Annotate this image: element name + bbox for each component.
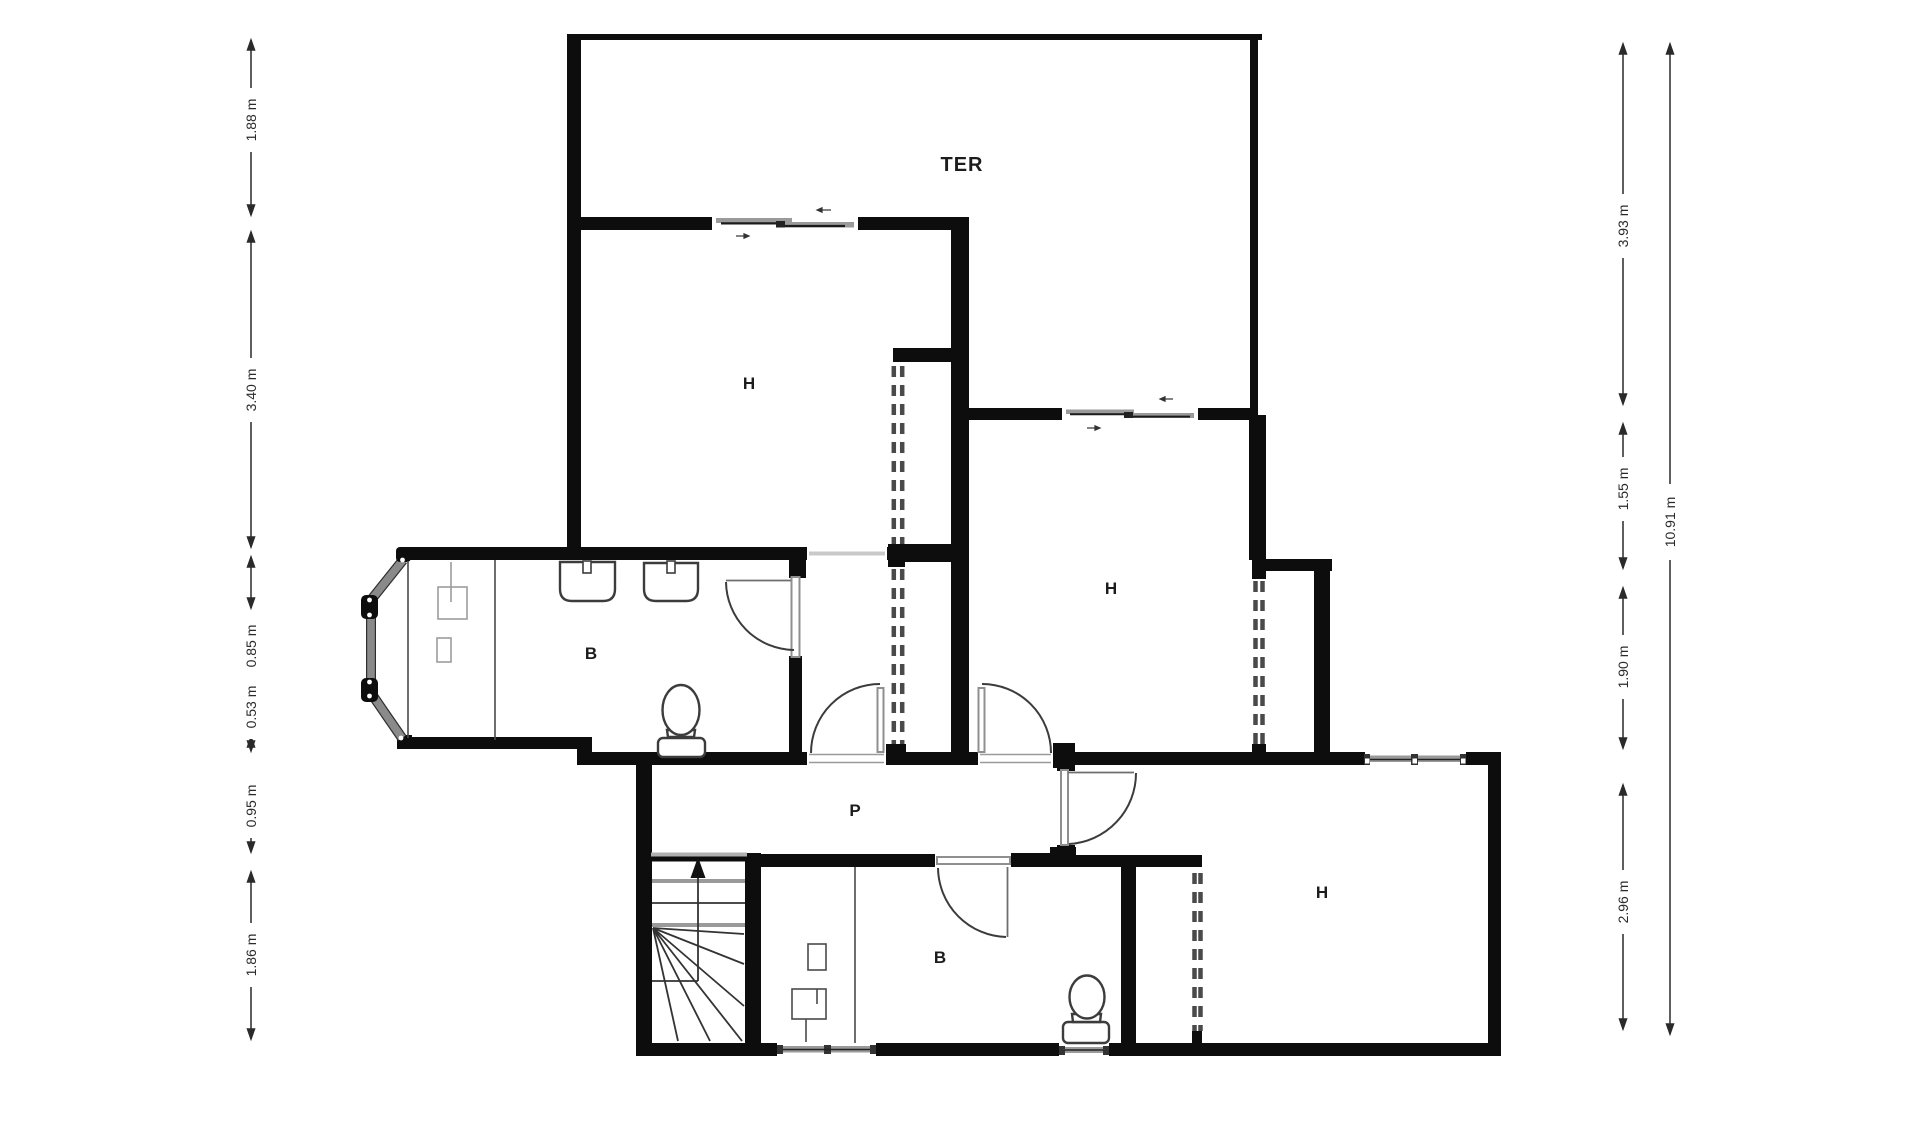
svg-text:0.85 m: 0.85 m	[243, 625, 259, 668]
svg-text:H: H	[1105, 579, 1117, 598]
svg-text:1.90 m: 1.90 m	[1615, 646, 1631, 689]
svg-text:0.95 m: 0.95 m	[243, 785, 259, 828]
svg-text:2.96 m: 2.96 m	[1615, 881, 1631, 924]
svg-text:1.88 m: 1.88 m	[243, 99, 259, 142]
svg-text:0.53 m: 0.53 m	[243, 686, 259, 729]
svg-text:H: H	[743, 374, 755, 393]
svg-text:1.86 m: 1.86 m	[243, 934, 259, 977]
svg-text:3.93 m: 3.93 m	[1615, 205, 1631, 248]
svg-text:B: B	[585, 644, 597, 663]
svg-text:TER: TER	[941, 154, 984, 176]
svg-text:P: P	[849, 801, 860, 820]
svg-text:1.55 m: 1.55 m	[1615, 468, 1631, 511]
svg-text:H: H	[1316, 883, 1328, 902]
svg-text:3.40 m: 3.40 m	[243, 369, 259, 412]
svg-text:10.91 m: 10.91 m	[1662, 497, 1678, 548]
svg-text:B: B	[934, 948, 946, 967]
